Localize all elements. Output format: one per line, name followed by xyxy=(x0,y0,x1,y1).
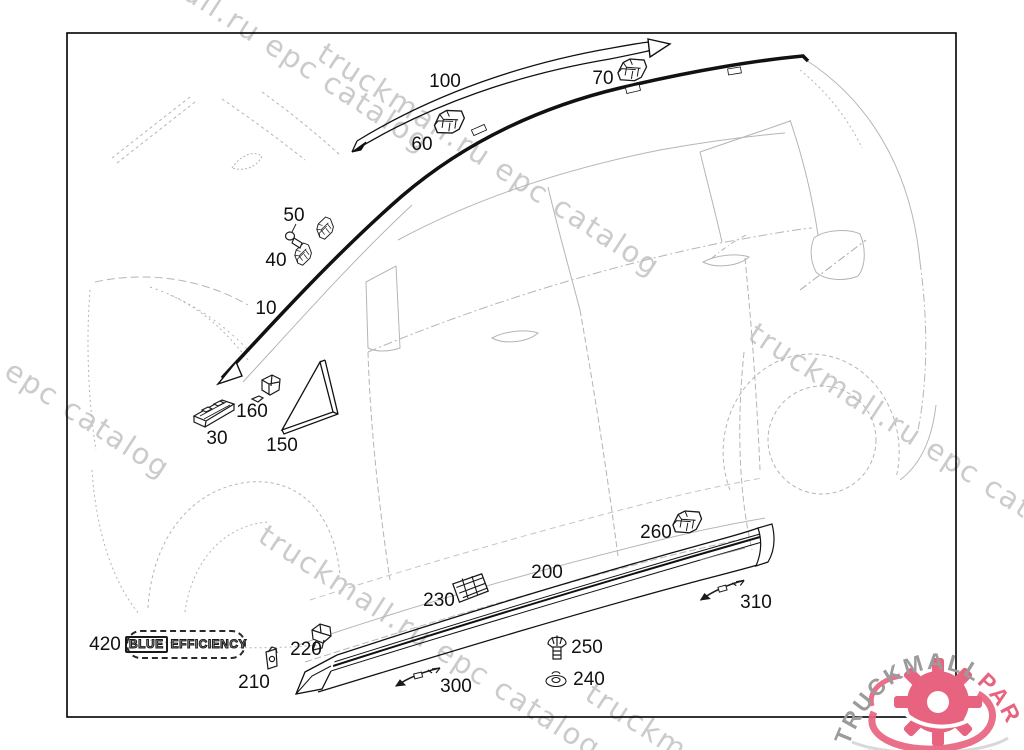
part-label-200: 200 xyxy=(531,562,563,584)
part-label-420: 420 xyxy=(89,634,121,656)
parts-catalog-page: truckmall.ru epc catalog truckmall.ru ep… xyxy=(0,0,1024,750)
part-label-250: 250 xyxy=(571,637,603,659)
badge-efficiency-text: EFFICIENCY xyxy=(171,638,247,651)
part-label-40: 40 xyxy=(265,250,286,272)
part-label-100: 100 xyxy=(429,71,461,93)
part-label-210: 210 xyxy=(238,672,270,694)
badge-blue-text: BLUE xyxy=(125,636,168,653)
part-label-220: 220 xyxy=(290,639,322,661)
part-label-230: 230 xyxy=(423,590,455,612)
part-label-260: 260 xyxy=(640,522,672,544)
part-label-150: 150 xyxy=(266,435,298,457)
part-label-310: 310 xyxy=(740,592,772,614)
part-label-50: 50 xyxy=(283,205,304,227)
part-label-300: 300 xyxy=(440,676,472,698)
part-label-240: 240 xyxy=(573,669,605,691)
blue-efficiency-badge: BLUE EFFICIENCY xyxy=(126,630,246,659)
part-label-10: 10 xyxy=(255,298,276,320)
part-label-160: 160 xyxy=(236,401,268,423)
part-label-70: 70 xyxy=(592,68,613,90)
part-label-60: 60 xyxy=(411,134,432,156)
part-label-30: 30 xyxy=(206,428,227,450)
